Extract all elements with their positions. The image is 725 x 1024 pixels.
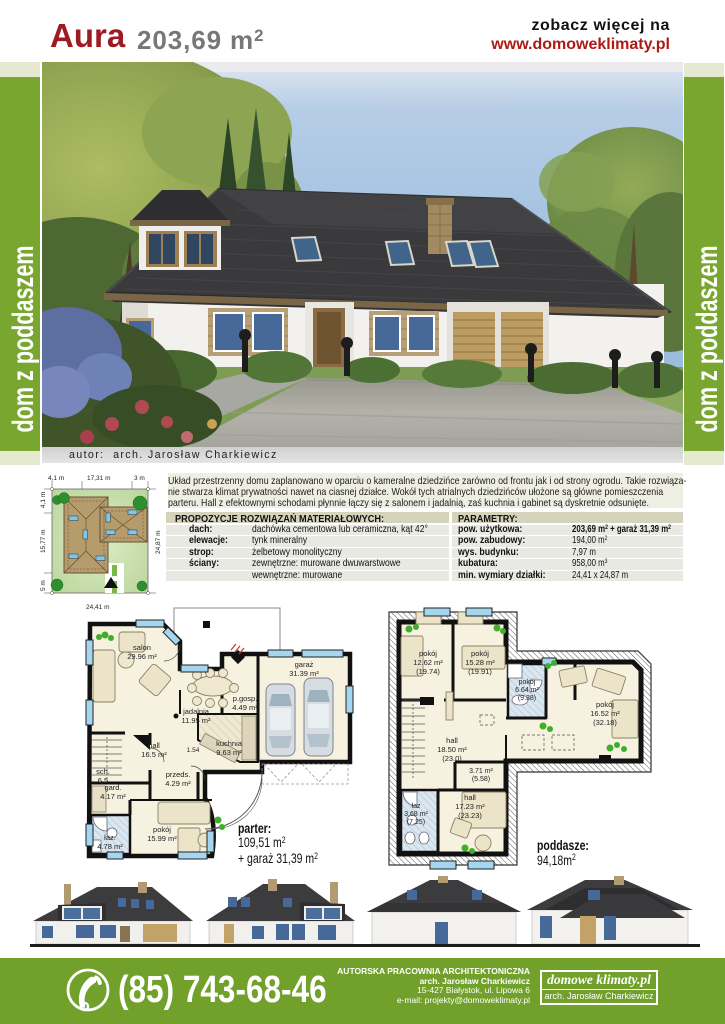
svg-text:12.62 m²: 12.62 m² bbox=[413, 658, 443, 667]
svg-text:16.5 m²: 16.5 m² bbox=[141, 750, 167, 759]
svg-text:(23.0): (23.0) bbox=[442, 754, 462, 763]
svg-text:15.28 m²: 15.28 m² bbox=[465, 658, 495, 667]
svg-text:pokój: pokój bbox=[471, 649, 489, 658]
svg-text:(19.91): (19.91) bbox=[468, 667, 492, 676]
svg-text:(5.58): (5.58) bbox=[472, 776, 490, 783]
svg-text:(19.74): (19.74) bbox=[416, 667, 440, 676]
svg-text:łaz.: łaz. bbox=[104, 833, 116, 842]
svg-text:hall: hall bbox=[464, 793, 476, 802]
svg-text:pokój: pokój bbox=[153, 825, 171, 834]
svg-text:11.95 m²: 11.95 m² bbox=[181, 716, 211, 725]
svg-text:4.49 m²: 4.49 m² bbox=[232, 703, 258, 712]
svg-text:pokój: pokój bbox=[519, 679, 536, 686]
svg-text:salon: salon bbox=[133, 643, 151, 652]
svg-text:9.63 m²: 9.63 m² bbox=[216, 748, 242, 757]
svg-text:17,31 m: 17,31 m bbox=[87, 475, 111, 482]
svg-text:łaz: łaz bbox=[412, 803, 421, 810]
svg-text:6.64 m²: 6.64 m² bbox=[515, 687, 539, 694]
svg-text:(9.38): (9.38) bbox=[518, 695, 536, 702]
svg-text:pokój: pokój bbox=[596, 700, 614, 709]
svg-text:15.99 m²: 15.99 m² bbox=[147, 834, 177, 843]
svg-text:17.23 m²: 17.23 m² bbox=[455, 802, 485, 811]
svg-text:4.17 m²: 4.17 m² bbox=[100, 792, 126, 801]
svg-text:jadalnia: jadalnia bbox=[182, 707, 210, 716]
svg-text:6.5: 6.5 bbox=[98, 776, 108, 785]
svg-text:hall: hall bbox=[446, 736, 458, 745]
svg-text:dom z poddaszem: dom z poddaszem bbox=[691, 246, 724, 433]
svg-text:(32.18): (32.18) bbox=[593, 718, 617, 727]
svg-text:3 m: 3 m bbox=[134, 475, 145, 482]
svg-text:4,1 m: 4,1 m bbox=[48, 475, 64, 482]
svg-text:pokój: pokój bbox=[419, 649, 437, 658]
svg-text:(23.23): (23.23) bbox=[458, 811, 482, 820]
svg-text:kuchnia: kuchnia bbox=[216, 739, 243, 748]
svg-text:sch.: sch. bbox=[96, 767, 110, 776]
svg-text:1.54: 1.54 bbox=[187, 747, 200, 754]
svg-text:3.71 m²: 3.71 m² bbox=[469, 768, 493, 775]
svg-text:18.50 m²: 18.50 m² bbox=[437, 745, 467, 754]
svg-text:29.96 m²: 29.96 m² bbox=[127, 652, 157, 661]
svg-text:p.gosp.: p.gosp. bbox=[233, 694, 258, 703]
svg-text:hall: hall bbox=[148, 741, 160, 750]
svg-text:24,87 m: 24,87 m bbox=[155, 531, 162, 555]
svg-text:15,77 m: 15,77 m bbox=[40, 530, 47, 554]
svg-text:4,1 m: 4,1 m bbox=[40, 492, 47, 508]
svg-text:dom z poddaszem: dom z poddaszem bbox=[7, 246, 40, 433]
svg-text:31.39 m²: 31.39 m² bbox=[289, 669, 319, 678]
svg-text:4.29 m²: 4.29 m² bbox=[165, 779, 191, 788]
svg-text:garaż: garaż bbox=[295, 660, 314, 669]
svg-text:4.78 m²: 4.78 m² bbox=[97, 842, 123, 851]
svg-text:przeds.: przeds. bbox=[166, 770, 191, 779]
svg-text:5 m: 5 m bbox=[40, 580, 47, 591]
svg-text:(7.25): (7.25) bbox=[407, 819, 425, 826]
svg-text:3,68 m²: 3,68 m² bbox=[404, 811, 428, 818]
svg-text:16.52 m²: 16.52 m² bbox=[590, 709, 620, 718]
